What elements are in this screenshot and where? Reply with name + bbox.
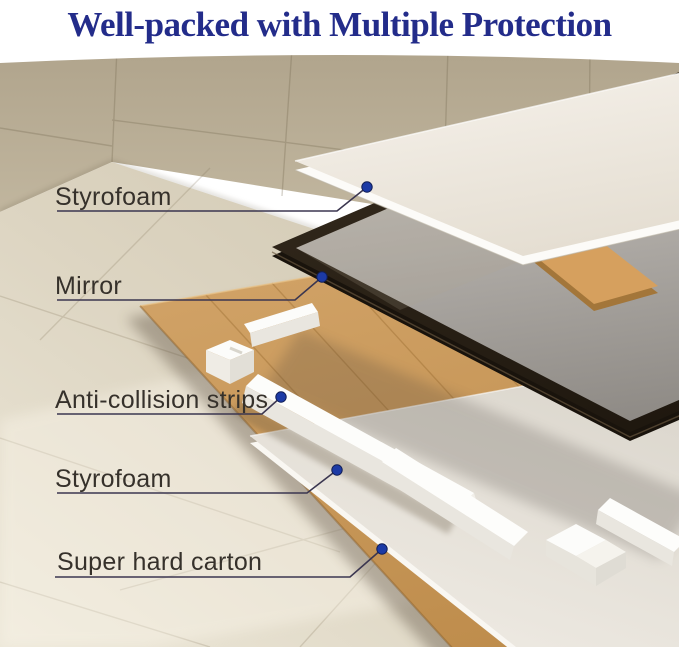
callout-dot-styrofoam-top xyxy=(362,182,372,192)
label-anti-collision-strips: Anti-collision strips xyxy=(55,386,268,415)
callout-dot-styrofoam-bottom xyxy=(332,465,342,475)
product-packaging-diagram: Well-packed with Multiple Protection Sty… xyxy=(0,0,679,647)
label-mirror: Mirror xyxy=(55,272,122,301)
label-styrofoam-bottom: Styrofoam xyxy=(55,465,172,494)
callout-dot-super-hard-carton xyxy=(377,544,387,554)
label-super-hard-carton: Super hard carton xyxy=(57,548,262,577)
page-title: Well-packed with Multiple Protection xyxy=(0,0,679,50)
callout-dot-mirror xyxy=(317,272,327,282)
label-styrofoam-top: Styrofoam xyxy=(55,183,172,212)
callout-dot-anti-collision-strips xyxy=(276,392,286,402)
